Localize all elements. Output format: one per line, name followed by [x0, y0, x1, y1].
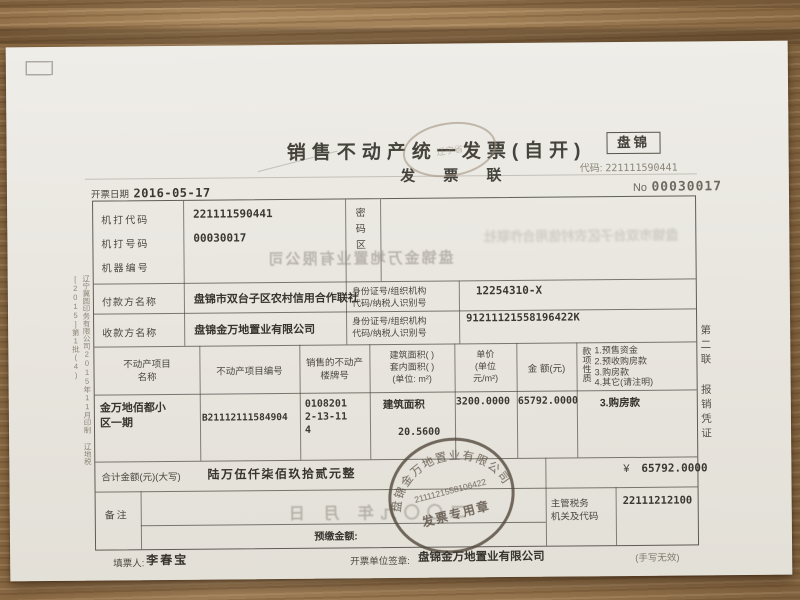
filler-name: 李春宝 [146, 551, 188, 568]
showthrough-box [26, 61, 53, 75]
grid-line [141, 491, 143, 549]
item-building-no: 0108201 2-13-11 4 [305, 397, 347, 436]
issue-date-label: 开票日期 [91, 189, 129, 200]
payer-name: 盘锦市双台子区农村信用合作联社 [194, 289, 359, 306]
col-header-project-number: 不动产项目编号 [199, 363, 299, 378]
item-area-value: 20.5600 [398, 427, 440, 438]
showthrough-box [26, 61, 53, 75]
showthrough-box [26, 61, 53, 75]
total-in-words: 陆万伍仟柒佰玖拾贰元整 [207, 464, 356, 482]
item-amount: 65792.0000 [518, 395, 578, 407]
payment-nature-options: 1.预售资金 2.预收购房款 3.购房款 4.其它(请注明) [594, 344, 694, 388]
svg-text:盘锦金万地置业有限公司: 盘锦金万地置业有限公司 [378, 436, 513, 516]
col-header-area: 建筑面积( ) 套内面积( ) (单位: m²) [369, 349, 454, 386]
issue-date-value: 2016-05-17 [133, 186, 210, 201]
machine-number-label: 机打号码 [101, 235, 149, 250]
machine-serial-label: 机器编号 [102, 259, 150, 274]
grid-line [459, 280, 461, 343]
invoice-no-line: No 00030017 [633, 177, 722, 196]
payee-id-label: 身份证号/组织机构 代码/纳税人识别号 [352, 315, 427, 340]
invoice-title: 销售不动产统一发票(自开) [246, 135, 626, 165]
grid-line [94, 308, 696, 314]
machine-code-label: 机打代码 [101, 211, 149, 226]
grid-line [94, 278, 696, 284]
seal-caption-text: 发票专用章 [419, 497, 492, 529]
item-project-number: B21112111584904 [202, 412, 288, 424]
showthrough-date: 二〇〇九年 月 日 [176, 498, 466, 525]
grid-line [616, 487, 618, 545]
password-area-label: 密码区 [351, 207, 367, 277]
grid-line [345, 199, 347, 344]
showthrough-box [26, 61, 53, 75]
col-header-amount: 金 额(元) [516, 360, 576, 375]
invoice-no-label: No [633, 182, 647, 194]
grid-line [454, 344, 456, 459]
col-header-project-name: 不动产项目 名称 [94, 358, 199, 385]
showthrough-box [26, 61, 53, 75]
item-area-type: 建筑面积 [383, 397, 425, 412]
fold-line [85, 173, 697, 180]
showthrough-box [26, 61, 53, 75]
invoice-code-label: 代码: [580, 163, 603, 174]
grid-line [299, 345, 301, 460]
prepaid-amount-label: 预缴金额: [246, 527, 426, 544]
payee-id-value: 91211121558196422K [466, 311, 580, 324]
payee-label: 收款方名称 [102, 324, 157, 339]
filler-label: 填票人: [113, 555, 144, 569]
total-value: 65792.0000 [641, 461, 707, 475]
handwriting-invalid-note: (手写无效) [635, 550, 679, 564]
machine-number-value: 00030017 [193, 231, 246, 244]
grid-line [545, 458, 547, 546]
payer-id-value: 12254310-X [476, 284, 542, 298]
company-seal: 盘锦金万地置业有限公司 2111121558106422 发票专用章 [368, 418, 535, 574]
form-table: 机打代码 机打号码 机器编号 221111590441 00030017 盘锦金… [92, 195, 699, 550]
item-payment-nature: 3.购房款 [600, 395, 640, 410]
printer-info-vertical: 辽宁冀圆印务有限公司2015年11月印制 辽地税[2015]第1批(4) [70, 275, 94, 485]
invoice-paper: 销售不动产统一发票(自开) 发 票 联 辽宁省 盘锦 代码: 221111590… [6, 41, 793, 582]
grid-line [95, 456, 697, 462]
copy-use-vertical: 第二联 报销凭证 [698, 324, 714, 494]
grid-line [369, 344, 371, 459]
crease-mark [258, 151, 338, 173]
payer-id-label: 身份证号/组织机构 代码/纳税人识别号 [352, 285, 427, 310]
machine-code-value: 221111590441 [193, 207, 273, 221]
supervision-stamp: 辽宁省 [396, 112, 504, 186]
grid-line [516, 343, 518, 458]
grid-line [94, 341, 696, 347]
tax-authority-code: 22111212100 [623, 494, 693, 507]
col-header-building-no: 销售的不动产 楼牌号 [299, 356, 369, 383]
grid-line [96, 486, 698, 492]
currency-symbol: ¥ [623, 463, 629, 475]
showthrough-box [26, 61, 53, 75]
invoice-code-value: 221111590441 [605, 163, 677, 175]
item-project-name: 金万地佰都小 区一期 [100, 401, 200, 432]
item-unit-price: 3200.0000 [456, 396, 510, 407]
grid-line [576, 342, 578, 457]
grid-line [183, 201, 185, 346]
showthrough-box [26, 61, 53, 75]
issuer-name: 盘锦金万地置业有限公司 [418, 548, 545, 565]
showthrough-box [26, 61, 53, 75]
payer-label: 付款方名称 [102, 293, 157, 308]
supervision-stamp-text: 辽宁省 [435, 143, 463, 158]
grid-line [141, 522, 546, 527]
seal-taxid-text: 2111121558106422 [413, 477, 487, 505]
showthrough-text: 盘锦金万地置业有限公司 [153, 247, 453, 271]
payee-name: 盘锦金万地置业有限公司 [194, 321, 315, 338]
grid-line [95, 389, 697, 395]
desk-background: 销售不动产统一发票(自开) 发 票 联 辽宁省 盘锦 代码: 221111590… [0, 0, 800, 600]
grid-line [380, 199, 382, 281]
seal-company-text: 盘锦金万地置业有限公司 [378, 436, 513, 516]
remarks-label: 备注 [105, 506, 129, 521]
issue-date-line: 开票日期 2016-05-17 [91, 184, 211, 203]
invoice-no-value: 00030017 [651, 179, 722, 195]
showthrough-box [26, 61, 53, 75]
showthrough-box [26, 61, 53, 75]
tax-authority-label: 主管税务 机关及代码 [551, 497, 599, 523]
issuer-label: 开票单位签章: [350, 553, 410, 568]
invoice-code-line: 代码: 221111590441 [580, 159, 678, 175]
col-header-unit-price: 单价 (单位 元/m²) [454, 348, 516, 385]
showthrough-box [26, 61, 53, 75]
showthrough-box [26, 61, 53, 75]
grid-line [199, 346, 201, 461]
showthrough-box [26, 61, 53, 75]
showthrough-box [26, 61, 53, 75]
copy-label: 发 票 联 [367, 164, 547, 187]
showthrough-boxes [26, 55, 738, 75]
col-header-payment-nature: 款项性质 [580, 346, 593, 388]
showthrough-box [26, 61, 53, 75]
showthrough-box [26, 61, 53, 75]
total-label: 合计金额(元)(大写) [101, 469, 180, 484]
showthrough-text: 盘锦市双台子区农村信用合作联社 [413, 225, 678, 246]
city-box: 盘锦 [606, 132, 660, 154]
